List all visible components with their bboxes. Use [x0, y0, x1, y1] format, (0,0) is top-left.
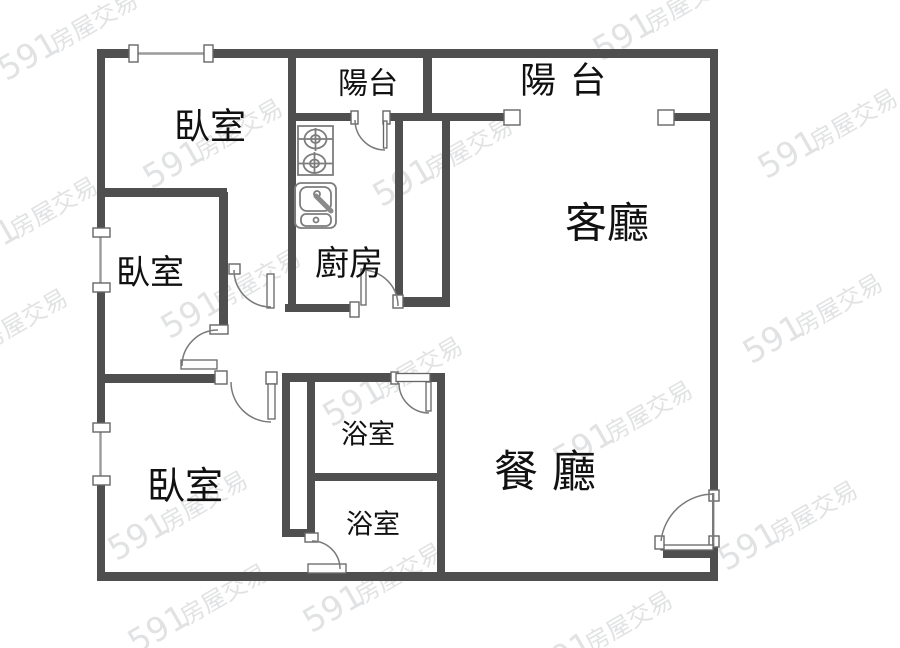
watermark-suffix: 房屋交易 [791, 269, 888, 341]
watermark-suffix: 房屋交易 [6, 172, 103, 244]
wall-bedroom2-top [97, 188, 227, 197]
door-swing-icon-bathroom-lower [305, 533, 346, 573]
wall-bottom [97, 572, 713, 581]
room-label-bedroom-bottom-left: 臥室 [147, 464, 223, 508]
room-label-dining-room: 餐廳 [494, 447, 610, 498]
watermark-layer: 591房屋交易 591房屋交易 591房屋交易 591房屋交易 591房屋交易 … [0, 0, 900, 648]
room-label-kitchen: 廚房 [315, 244, 383, 284]
wall-bedroom1-kitchen [288, 49, 296, 312]
room-label-kitchen-balcony: 陽台 [338, 67, 398, 102]
wall-kitchen-right-shaft-left [395, 113, 403, 307]
watermark-suffix: 房屋交易 [176, 559, 273, 631]
floor-plan-svg: 591房屋交易 591房屋交易 591房屋交易 591房屋交易 591房屋交易 … [0, 0, 900, 648]
window-icon-balcony-opening [504, 110, 674, 125]
wall-left-middle [97, 291, 105, 424]
wall-bedroom2-right [219, 192, 228, 332]
watermark-suffix: 房屋交易 [421, 112, 518, 184]
door-swing-icon-entrance [655, 490, 719, 550]
watermark-suffix: 房屋交易 [641, 0, 738, 38]
window-icon-left-bedroom2 [93, 228, 110, 292]
window-icon-top [129, 45, 213, 62]
room-label-bedroom-top-left: 臥室 [174, 107, 246, 148]
watermark-suffix: 房屋交易 [0, 284, 73, 356]
door-swing-icon-kitchen-balcony [351, 111, 390, 150]
room-label-bedroom-mid-left: 臥室 [116, 253, 184, 293]
watermark-suffix: 房屋交易 [766, 476, 863, 548]
wall-plumbing-shaft-left [282, 382, 290, 537]
watermark-suffix: 房屋交易 [581, 586, 678, 648]
wall-bathroom-top-left [282, 373, 396, 382]
wall-plumbing-shaft-right [307, 382, 315, 533]
wall-kitchen-bottom [285, 304, 353, 312]
room-label-bathroom-upper: 浴室 [341, 420, 395, 451]
wall-left-upper [97, 49, 105, 230]
wall-bathroom-right [437, 373, 445, 581]
door-swing-icon-bedroom3 [231, 372, 277, 422]
sink-icon [295, 183, 336, 228]
wall-top-main-segment [212, 49, 713, 58]
room-label-living-room: 客廳 [565, 199, 649, 248]
wall-bedroom3-top [101, 374, 218, 383]
floor-plan-image: 591房屋交易 591房屋交易 591房屋交易 591房屋交易 591房屋交易 … [0, 0, 900, 648]
window-icon-left-bedroom3 [93, 423, 110, 485]
watermark-suffix: 房屋交易 [371, 332, 468, 404]
kitchen-fixtures [295, 126, 336, 228]
wall-balcony-bottom-right [674, 113, 713, 121]
wall-between-bathrooms [307, 473, 445, 481]
room-label-main-balcony: 陽台 [520, 61, 620, 102]
room-label-bathroom-lower: 浴室 [346, 510, 400, 541]
wall-kitchen-balcony-bottom-left [288, 113, 352, 121]
watermark-suffix: 房屋交易 [806, 84, 900, 156]
wall-balcony-divider [423, 49, 432, 113]
wall-living-left-shaft-right [442, 113, 450, 307]
wall-left-lower [97, 484, 105, 581]
watermark-suffix: 房屋交易 [601, 376, 698, 448]
stove-icon [298, 126, 333, 175]
